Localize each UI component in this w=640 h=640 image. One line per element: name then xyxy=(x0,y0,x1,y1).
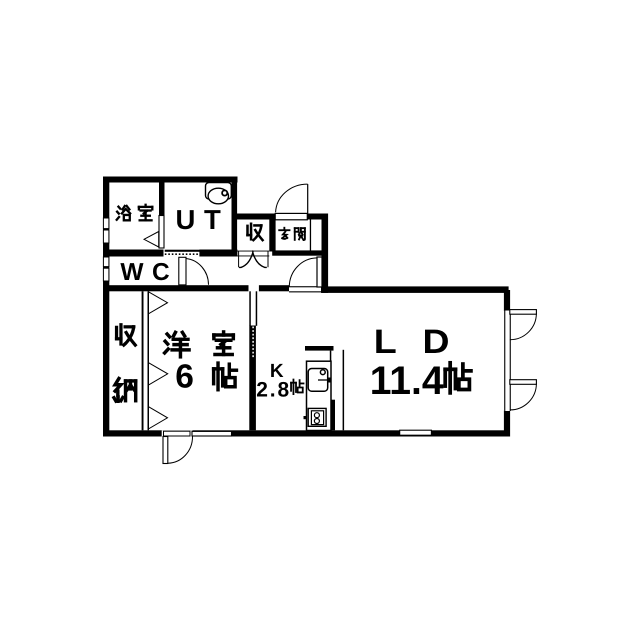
svg-text:C: C xyxy=(152,259,170,286)
svg-text:U: U xyxy=(176,204,196,235)
svg-text:D: D xyxy=(423,323,450,361)
svg-text:11.4: 11.4 xyxy=(370,359,445,403)
svg-text:T: T xyxy=(204,204,221,235)
svg-text:2.8: 2.8 xyxy=(256,378,289,401)
svg-text:6: 6 xyxy=(175,359,194,396)
svg-text:L: L xyxy=(374,323,397,361)
svg-text:W: W xyxy=(120,259,144,286)
